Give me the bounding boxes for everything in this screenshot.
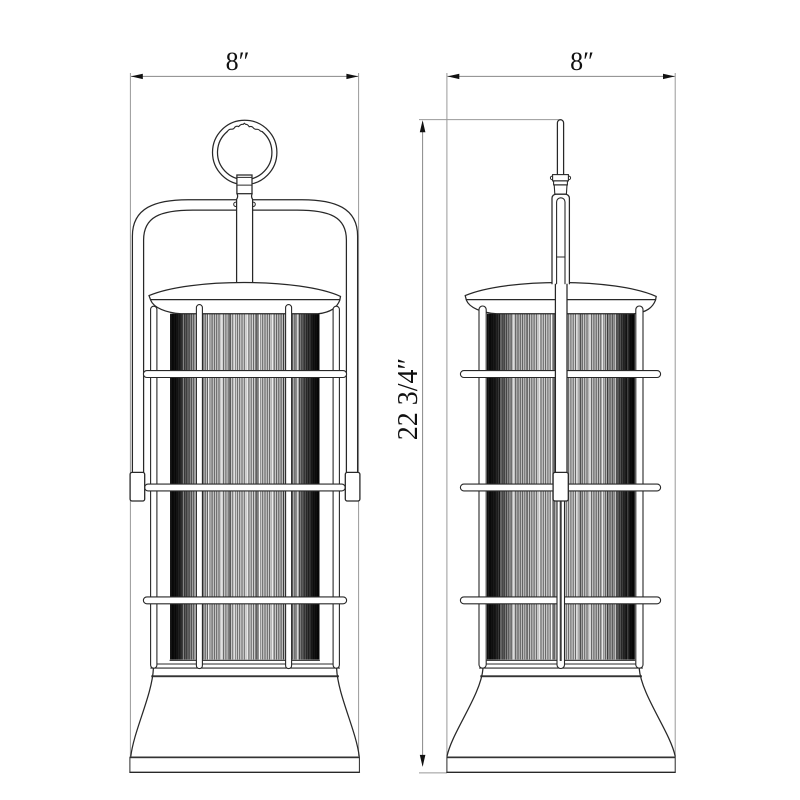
svg-text:22 3/4″: 22 3/4″: [393, 358, 424, 440]
svg-text:8″: 8″: [570, 47, 594, 76]
svg-text:8″: 8″: [226, 47, 250, 76]
